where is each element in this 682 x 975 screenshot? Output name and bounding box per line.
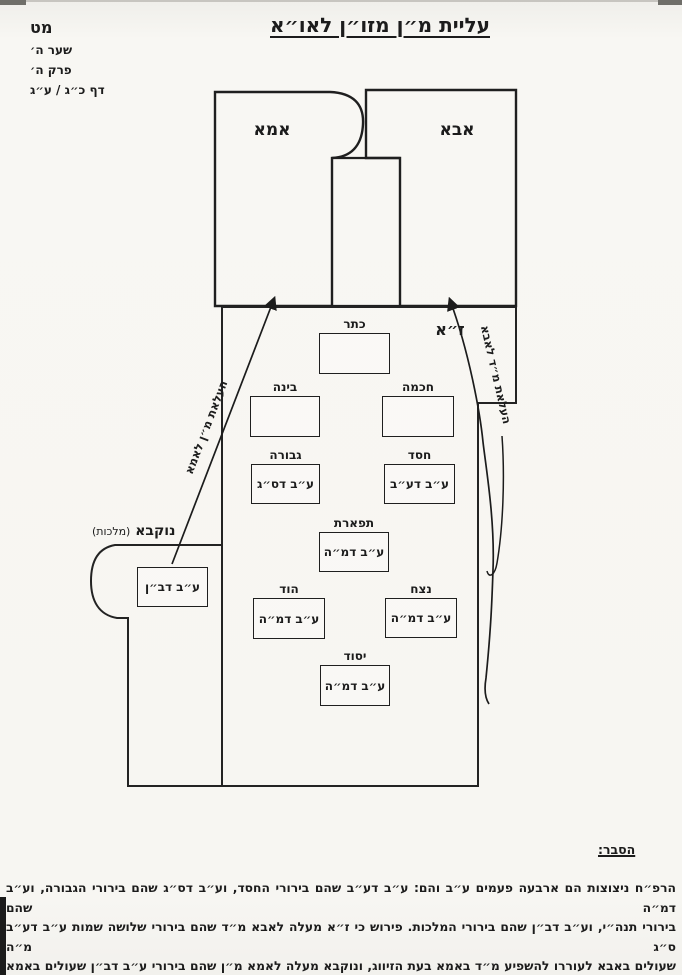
sefirah-label-tiferet: תפארת [319, 516, 389, 531]
sefirah-tiferet: תפארת ע״ב דמ״ה [319, 516, 389, 572]
sefirah-value-gevurah: ע״ב דס״ג [257, 477, 314, 491]
sefirah-label-yesod: יסוד [320, 649, 390, 664]
nukva-value-box: ע״ב דב״ן [137, 567, 208, 607]
region-label-nukva: נוקבא (מלכות) [92, 523, 220, 539]
folio-reference: דף כ״ג / ע״ג [30, 80, 133, 100]
page-number: מט [30, 16, 133, 40]
explanation-paragraph: הרפ״ח ניצוצות הם ארבעה פעמים ע״ב והם: ע״… [6, 879, 676, 975]
sefirah-box-netzach: ע״ב דמ״ה [385, 598, 457, 638]
sefirah-box-hod: ע״ב דמ״ה [253, 598, 325, 639]
sefirah-value-hod: ע״ב דמ״ה [259, 612, 320, 626]
md-arrow-curve-detail [487, 436, 503, 575]
explanation-line: בירורי תנה״י, וע״ב דב״ן שהם בירורי המלכו… [6, 918, 676, 957]
sefirah-label-gevurah: גבורה [251, 448, 320, 463]
diagram-canvas [0, 0, 682, 975]
sefirah-label-keter: כתר [319, 317, 390, 332]
sefirah-binah: בינה [250, 380, 320, 437]
sefirah-chochmah: חכמה [382, 380, 454, 437]
explanation-line: שעולים באבא לעוררו להשפיע מ״ד באמא בעת ה… [6, 957, 676, 975]
sefirah-keter: כתר [319, 317, 390, 374]
region-label-ima: אמא [242, 120, 302, 140]
sefirah-value-netzach: ע״ב דמ״ה [391, 611, 452, 625]
nukva-name: נוקבא [135, 523, 175, 539]
gate-reference: שער ה׳ [30, 40, 133, 60]
nukva-value-container: ע״ב דב״ן [137, 567, 208, 607]
sefirah-label-chesed: חסד [384, 448, 455, 463]
sefirah-box-yesod: ע״ב דמ״ה [320, 665, 390, 706]
za-nukva-outline [91, 307, 516, 786]
page-header-block: מט שער ה׳ פרק ה׳ דף כ״ג / ע״ג [30, 16, 133, 100]
sefirah-label-netzach: נצח [385, 582, 457, 597]
region-label-abba: אבא [427, 120, 487, 140]
sefirah-yesod: יסוד ע״ב דמ״ה [320, 649, 390, 706]
sefirah-chesed: חסד ע״ב דע״ב [384, 448, 455, 504]
page-title: עליית מ״ן מזו״ן לאו״א [260, 13, 500, 37]
scanned-page: עליית מ״ן מזו״ן לאו״א מט שער ה׳ פרק ה׳ ד… [0, 0, 682, 975]
sefirah-value-chesed: ע״ב דע״ב [390, 477, 449, 491]
sefirah-value-tiferet: ע״ב דמ״ה [324, 545, 385, 559]
sefirah-box-chesed: ע״ב דע״ב [384, 464, 455, 504]
sefirah-label-chochmah: חכמה [382, 380, 454, 395]
explanation-line: הרפ״ח ניצוצות הם ארבעה פעמים ע״ב והם: ע״… [6, 879, 676, 918]
chapter-reference: פרק ה׳ [30, 60, 133, 80]
sefirah-box-keter [319, 333, 390, 374]
sefirah-value-yesod: ע״ב דמ״ה [325, 679, 386, 693]
sefirah-box-binah [250, 396, 320, 437]
sefirah-box-chochmah [382, 396, 454, 437]
nukva-value: ע״ב דב״ן [145, 580, 200, 594]
sefirah-box-tiferet: ע״ב דמ״ה [319, 532, 389, 572]
sefirah-box-gevurah: ע״ב דס״ג [251, 464, 320, 504]
sefirah-gevurah: גבורה ע״ב דס״ג [251, 448, 320, 504]
sefirah-netzach: נצח ע״ב דמ״ה [385, 582, 457, 638]
tower-outline [332, 158, 400, 306]
explanation-heading: הסבר: [598, 842, 658, 857]
region-label-za: ז״א [422, 320, 478, 339]
nukva-qualifier: (מלכות) [92, 525, 130, 538]
sefirah-label-hod: הוד [253, 582, 325, 597]
sefirah-label-binah: בינה [250, 380, 320, 395]
sefirah-hod: הוד ע״ב דמ״ה [253, 582, 325, 639]
